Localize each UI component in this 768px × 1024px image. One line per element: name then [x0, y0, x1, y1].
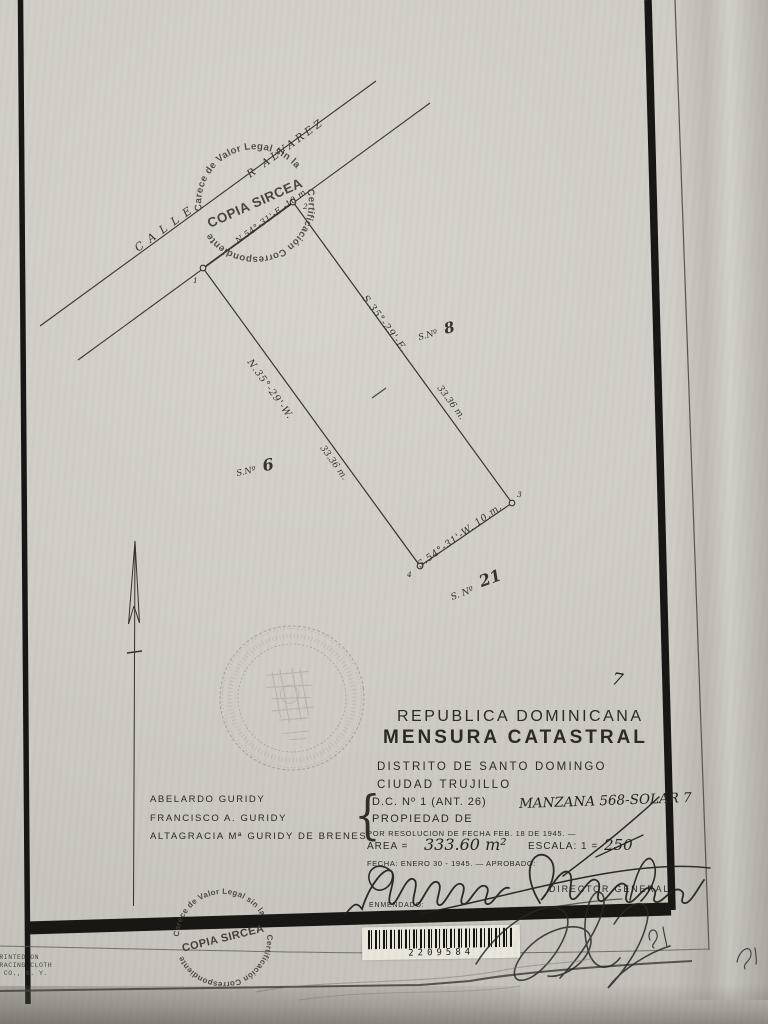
director-signatures [344, 797, 710, 916]
stamp-bottom-center-text: COPIA SIRCEA [181, 923, 266, 955]
ink-overlay-layer: Carece de Valor Legal sin la Certificaci… [0, 0, 768, 1024]
bottom-scribbles [256, 892, 756, 1000]
scanned-cadastral-plan: 1 2 3 4 CALLE R ALVAREZ N.54°-31'-E.-10.… [0, 0, 768, 1024]
validity-stamp-bottom: Carece de Valor Legal sin la Certificaci… [162, 876, 285, 1000]
